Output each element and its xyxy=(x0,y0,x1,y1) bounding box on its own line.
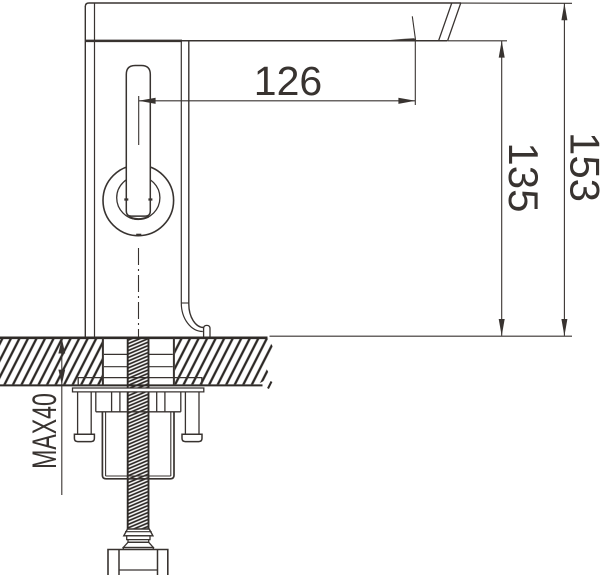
svg-text:135: 135 xyxy=(500,142,547,212)
svg-text:MAX40: MAX40 xyxy=(27,393,64,469)
svg-text:153: 153 xyxy=(562,132,600,202)
svg-text:126: 126 xyxy=(254,58,322,104)
